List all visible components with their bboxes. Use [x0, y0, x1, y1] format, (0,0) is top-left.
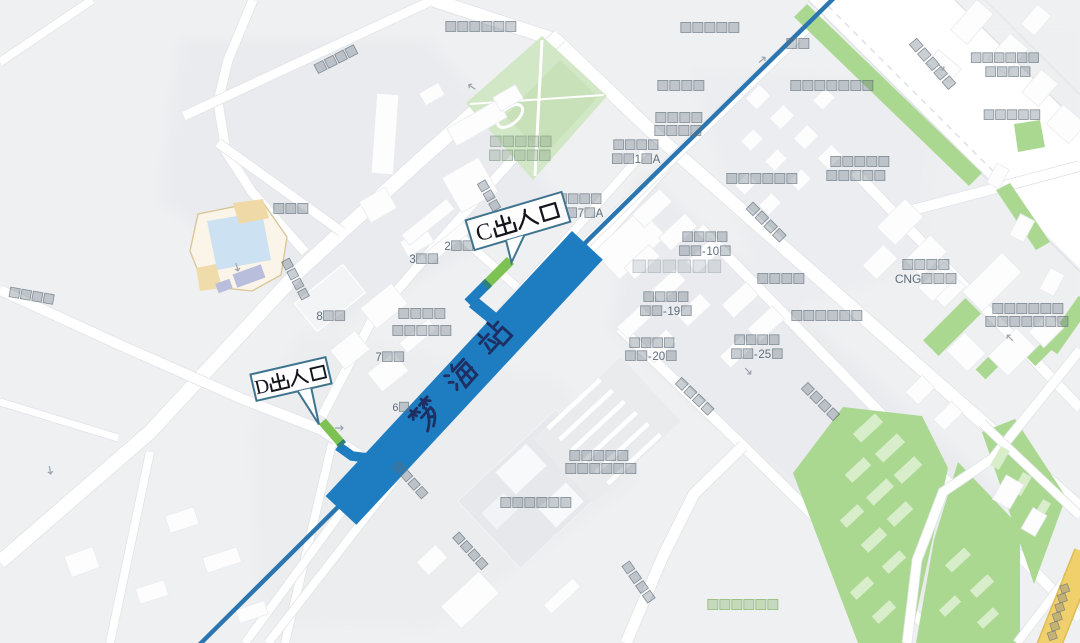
svg-text:6: 6: [392, 402, 398, 414]
svg-text:1: 1: [635, 154, 641, 166]
svg-text:9: 9: [674, 306, 680, 318]
svg-text:N: N: [903, 272, 912, 286]
svg-text:0: 0: [659, 351, 665, 363]
svg-text:-: -: [663, 306, 667, 318]
svg-text:A: A: [653, 154, 661, 166]
svg-text:7: 7: [578, 208, 584, 220]
svg-text:8: 8: [316, 311, 322, 323]
svg-text:-: -: [648, 351, 652, 363]
svg-text:0: 0: [713, 246, 719, 258]
svg-text:-: -: [754, 349, 758, 361]
svg-text:G: G: [912, 272, 921, 286]
svg-text:-: -: [702, 246, 706, 258]
svg-text:2: 2: [444, 241, 450, 253]
svg-text:7: 7: [375, 352, 381, 364]
svg-text:5: 5: [765, 349, 771, 361]
svg-text:3: 3: [409, 254, 415, 266]
svg-text:A: A: [596, 208, 604, 220]
